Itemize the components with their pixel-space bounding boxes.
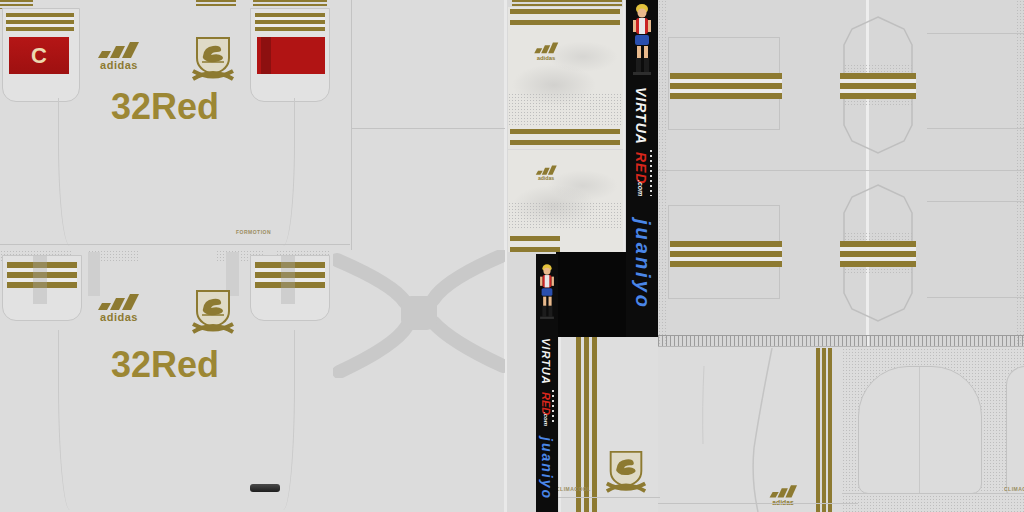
adidas-logo-icon: adidas bbox=[532, 164, 560, 182]
x-arm bbox=[339, 326, 407, 372]
x-center bbox=[401, 296, 437, 330]
sleeve-stripes bbox=[6, 13, 74, 31]
banner-brand-suffix: .com bbox=[637, 180, 644, 196]
mascot-leg bbox=[543, 297, 546, 306]
kit-texture-sheet: C adidas 32Red FORMOTION bbox=[0, 0, 1024, 512]
placket-tab bbox=[88, 252, 100, 296]
shirt2-right-sleeve bbox=[250, 255, 330, 321]
shorts-seam bbox=[927, 201, 1024, 202]
captain-letter: C bbox=[31, 43, 47, 69]
adidas-bar bbox=[98, 51, 111, 58]
mascot-leg bbox=[549, 297, 552, 306]
mascot-arm bbox=[552, 277, 554, 286]
shorts2-stripes-center bbox=[840, 241, 916, 267]
banner-brand-accent: RED bbox=[633, 152, 649, 180]
adidas-bar bbox=[110, 298, 125, 310]
adidas-logo-icon: adidas bbox=[90, 292, 150, 324]
mascot-shirt-stripe bbox=[545, 275, 550, 287]
banner-brand-accent: RED bbox=[540, 392, 552, 412]
mascot-arm bbox=[648, 20, 651, 32]
foot-center-seam bbox=[919, 367, 920, 493]
shirt2-left-sleeve bbox=[2, 255, 82, 321]
adidas-wordmark: adidas bbox=[100, 311, 138, 323]
shorts-seam bbox=[927, 297, 1024, 298]
panel-stripes-bottom bbox=[510, 236, 560, 252]
foot-shape-partial bbox=[1006, 366, 1024, 494]
collar-strip bbox=[512, 0, 622, 6]
shorts2-stripes-left bbox=[670, 241, 782, 267]
shirt1-left-sleeve: C bbox=[2, 8, 80, 102]
panel-mesh-band bbox=[508, 93, 623, 127]
x-arm bbox=[433, 322, 503, 366]
banner-brand-main: VIRTUA bbox=[540, 330, 552, 392]
mascot-boot bbox=[636, 58, 641, 72]
mascot-shorts bbox=[542, 288, 553, 296]
sleeve-red-band bbox=[257, 37, 325, 74]
shirt1-hem-seam bbox=[0, 244, 350, 245]
climacool-label-clipped: CLIMAC bbox=[1004, 486, 1024, 493]
sock-seam bbox=[556, 497, 660, 498]
adidas-logo-icon: adidas bbox=[530, 41, 562, 61]
collar-strip bbox=[253, 0, 327, 8]
sleeve-panel-1: adidas bbox=[508, 7, 623, 149]
adidas-wordmark: adidas bbox=[538, 175, 554, 181]
formotion-label: FORMOTION bbox=[236, 229, 306, 237]
club-crest-icon bbox=[190, 34, 236, 82]
adidas-bar bbox=[98, 303, 111, 310]
mascot-boot bbox=[644, 58, 649, 72]
adidas-wordmark: adidas bbox=[100, 59, 138, 71]
panel-mesh-band bbox=[508, 202, 623, 230]
sponsor-text: 32Red bbox=[95, 344, 235, 388]
adidas-logo-icon: adidas bbox=[90, 40, 150, 72]
banner-fine-print bbox=[552, 390, 554, 424]
virtuared-mascot-icon bbox=[537, 257, 557, 327]
stitch-ruler-strip bbox=[658, 335, 1024, 347]
mascot-arm bbox=[633, 20, 636, 32]
adidas-bar bbox=[122, 294, 139, 310]
sleeve-shade-band bbox=[281, 256, 295, 304]
sleeve-stripes bbox=[255, 13, 325, 31]
panel-stripes-bottom bbox=[510, 129, 620, 145]
mascot-face bbox=[544, 268, 551, 275]
banner-brand-suffix: .com bbox=[543, 412, 549, 425]
climacool-label: CLIMACOOL bbox=[556, 486, 596, 493]
sleeve-shade-band bbox=[33, 256, 47, 304]
banner-brand-main: VIRTUA bbox=[633, 80, 649, 152]
x-arm bbox=[433, 256, 501, 300]
adidas-wordmark: adidas bbox=[537, 55, 556, 61]
formotion-x-panel bbox=[333, 250, 505, 378]
shorts1-stripes-left bbox=[670, 73, 782, 99]
adidas-bar bbox=[110, 46, 125, 58]
mascot-shorts bbox=[635, 35, 649, 45]
sock-stripes-vertical bbox=[816, 348, 832, 512]
zip-tag bbox=[250, 484, 280, 492]
virtuared-banner: VIRTUA RED .com juaniyo bbox=[536, 254, 558, 512]
mascot-boot bbox=[542, 306, 546, 317]
mascot-arm bbox=[540, 277, 542, 286]
virtuared-banner: VIRTUA RED .com juaniyo bbox=[626, 0, 658, 337]
mascot-base bbox=[540, 317, 554, 319]
club-crest-icon bbox=[602, 448, 650, 494]
x-arm bbox=[337, 260, 405, 302]
mascot-shirt-stripe bbox=[639, 18, 645, 34]
shorts-divider bbox=[658, 170, 1024, 171]
mascot-leg bbox=[644, 46, 648, 58]
sponsor-text: 32Red bbox=[95, 86, 235, 130]
sock-seam bbox=[842, 493, 1024, 494]
red-band-shadow bbox=[261, 37, 271, 74]
mascot-base bbox=[633, 72, 651, 75]
mascot-boot bbox=[549, 306, 553, 317]
shirt1-right-sleeve bbox=[250, 8, 330, 102]
captain-armband: C bbox=[9, 37, 69, 74]
panel-stripes-top bbox=[510, 9, 620, 25]
collar-strip bbox=[196, 0, 236, 7]
panel-seam bbox=[351, 128, 505, 129]
edge-mesh-strip bbox=[658, 0, 668, 346]
banner-author: juaniyo bbox=[539, 428, 555, 510]
foot-shape bbox=[858, 366, 982, 494]
sleeve-panel-2: adidas bbox=[508, 150, 623, 252]
club-crest-icon bbox=[190, 286, 236, 336]
adidas-bar bbox=[122, 42, 139, 58]
shorts-seam bbox=[927, 33, 1024, 34]
shorts1-stripes-center bbox=[840, 73, 916, 99]
mascot-leg bbox=[637, 46, 641, 58]
banner-fine-print bbox=[650, 150, 652, 196]
sock-seam bbox=[658, 503, 858, 504]
panel-seam bbox=[351, 0, 352, 250]
mascot-face bbox=[638, 9, 647, 18]
banner-author: juaniyo bbox=[631, 198, 654, 332]
shorts-seam bbox=[927, 128, 1024, 129]
sock-inner-seam bbox=[703, 366, 704, 444]
virtuared-mascot-icon bbox=[629, 2, 655, 78]
